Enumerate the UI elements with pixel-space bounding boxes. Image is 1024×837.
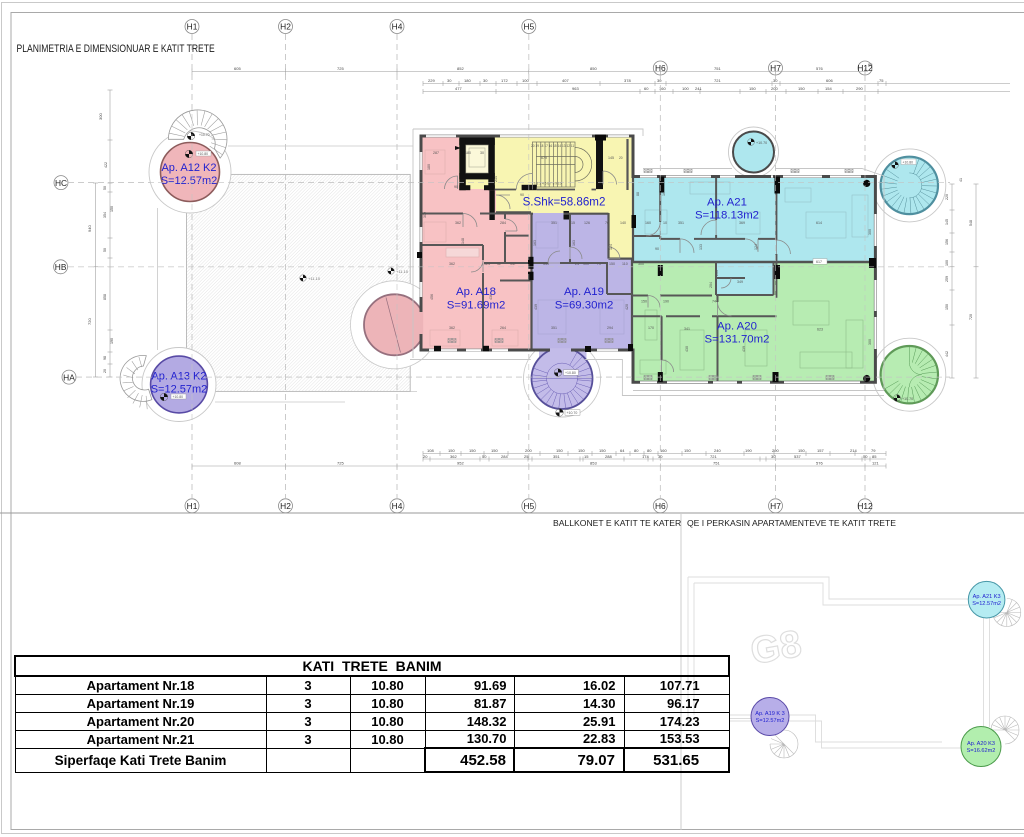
svg-text:963: 963 <box>572 86 579 91</box>
svg-text:140: 140 <box>620 221 626 225</box>
svg-text:548: 548 <box>969 220 973 226</box>
svg-text:H6: H6 <box>655 501 666 511</box>
svg-text:S=12.57m2: S=12.57m2 <box>161 175 218 187</box>
svg-text:288: 288 <box>605 454 612 459</box>
svg-text:605: 605 <box>234 66 241 71</box>
svg-text:150: 150 <box>110 206 114 212</box>
svg-text:124: 124 <box>484 262 490 266</box>
svg-text:150: 150 <box>469 448 476 453</box>
svg-text:110: 110 <box>622 262 628 266</box>
svg-text:264: 264 <box>500 326 506 330</box>
svg-text:362: 362 <box>449 326 455 330</box>
svg-text:32: 32 <box>497 262 501 266</box>
svg-text:952: 952 <box>457 461 464 466</box>
svg-text:439: 439 <box>742 346 746 352</box>
svg-text:30: 30 <box>483 78 488 83</box>
svg-text:300: 300 <box>868 229 872 235</box>
svg-text:+10.70: +10.70 <box>567 411 578 415</box>
svg-text:20: 20 <box>103 369 107 373</box>
svg-text:349: 349 <box>543 262 549 266</box>
svg-text:124: 124 <box>754 244 758 250</box>
svg-text:+10.80: +10.80 <box>903 160 914 164</box>
svg-text:420: 420 <box>625 304 629 310</box>
svg-text:+10.70: +10.70 <box>199 133 210 137</box>
svg-text:+10.80: +10.80 <box>565 371 576 375</box>
svg-text:H4: H4 <box>392 501 403 511</box>
svg-text:S=12.57m2: S=12.57m2 <box>151 384 208 396</box>
svg-text:349: 349 <box>737 280 743 284</box>
svg-text:229: 229 <box>428 78 435 83</box>
svg-text:+11.10: +11.10 <box>396 269 409 274</box>
svg-text:190: 190 <box>663 300 669 304</box>
svg-text:156: 156 <box>945 239 949 245</box>
svg-text:20 19 18 17 16 15 14 13 12 11: 20 19 18 17 16 15 14 13 12 11 <box>531 144 574 148</box>
svg-text:HB: HB <box>55 262 67 272</box>
svg-text:378: 378 <box>624 78 631 83</box>
svg-text:163: 163 <box>533 240 537 246</box>
svg-text:50: 50 <box>103 248 107 252</box>
svg-text:214: 214 <box>494 176 498 182</box>
svg-text:351: 351 <box>551 221 557 225</box>
svg-text:100: 100 <box>945 260 949 266</box>
svg-text:725: 725 <box>337 461 344 466</box>
svg-text:180: 180 <box>427 164 431 170</box>
svg-text:214: 214 <box>850 448 857 453</box>
svg-text:606: 606 <box>826 78 833 83</box>
svg-text:20: 20 <box>423 454 428 459</box>
svg-text:174: 174 <box>642 454 649 459</box>
svg-text:G8: G8 <box>747 623 804 673</box>
svg-text:HA: HA <box>63 372 75 382</box>
svg-text:H12: H12 <box>857 501 873 511</box>
svg-text:351: 351 <box>551 326 557 330</box>
svg-text:721: 721 <box>710 454 717 459</box>
svg-text:163: 163 <box>572 240 576 246</box>
svg-text:15: 15 <box>571 221 575 225</box>
svg-text:617: 617 <box>816 260 822 264</box>
svg-text:S.Shk=58.86m2: S.Shk=58.86m2 <box>523 196 606 209</box>
svg-text:Ap. A12 K2: Ap. A12 K2 <box>161 162 216 174</box>
svg-text:341: 341 <box>684 327 690 331</box>
svg-text:351: 351 <box>678 221 684 225</box>
svg-text:Ap. A18: Ap. A18 <box>456 286 496 298</box>
svg-text:456: 456 <box>430 294 434 300</box>
svg-text:24: 24 <box>575 262 579 266</box>
svg-text:S=91.69m2: S=91.69m2 <box>447 300 506 312</box>
svg-text:180: 180 <box>465 151 471 155</box>
svg-text:75: 75 <box>879 78 884 83</box>
svg-text:422: 422 <box>104 162 108 168</box>
svg-text:10: 10 <box>663 221 667 225</box>
svg-text:442: 442 <box>945 351 949 357</box>
svg-text:150: 150 <box>609 262 615 266</box>
svg-text:30: 30 <box>447 78 452 83</box>
svg-text:351: 351 <box>553 454 560 459</box>
svg-text:+10.70: +10.70 <box>902 397 913 401</box>
svg-text:60: 60 <box>644 86 649 91</box>
svg-text:147: 147 <box>510 262 516 266</box>
svg-text:284: 284 <box>500 221 506 225</box>
svg-text:287: 287 <box>433 151 439 155</box>
svg-text:720: 720 <box>87 318 92 325</box>
svg-text:160: 160 <box>645 221 651 225</box>
svg-text:121: 121 <box>872 461 879 466</box>
svg-text:S=69.30m2: S=69.30m2 <box>555 300 614 312</box>
svg-text:+10.80: +10.80 <box>198 152 209 156</box>
svg-text:300: 300 <box>638 262 644 266</box>
svg-text:190: 190 <box>745 448 752 453</box>
svg-text:290: 290 <box>856 86 863 91</box>
svg-text:30: 30 <box>480 151 484 155</box>
svg-text:150: 150 <box>556 448 563 453</box>
svg-text:725: 725 <box>337 66 344 71</box>
svg-text:+11.10: +11.10 <box>308 276 321 281</box>
svg-text:80: 80 <box>647 448 652 453</box>
svg-text:PLANIMETRIA E DIMENSIONUAR E K: PLANIMETRIA E DIMENSIONUAR E KATIT TRETE <box>17 43 216 55</box>
svg-text:852: 852 <box>457 66 464 71</box>
svg-text:858: 858 <box>103 294 107 300</box>
svg-text:154: 154 <box>825 86 832 91</box>
svg-text:BALLKONET E KATIT TE KATER: BALLKONET E KATIT TE KATER <box>553 518 681 528</box>
svg-text:100: 100 <box>522 78 529 83</box>
svg-text:H2: H2 <box>280 22 291 32</box>
svg-text:100: 100 <box>583 262 589 266</box>
svg-text:108: 108 <box>427 448 434 453</box>
svg-text:70: 70 <box>597 262 601 266</box>
svg-text:H5: H5 <box>523 501 534 511</box>
svg-text:QE I PERKASIN APARTAMENTEVE TE: QE I PERKASIN APARTAMENTEVE TE KATIT TRE… <box>687 518 896 528</box>
svg-text:Ap. A20 K3: Ap. A20 K3 <box>967 741 995 747</box>
svg-text:100: 100 <box>682 86 689 91</box>
svg-text:90: 90 <box>655 247 659 251</box>
svg-text:362: 362 <box>449 262 455 266</box>
svg-text:576: 576 <box>816 66 823 71</box>
svg-text:15: 15 <box>584 454 589 459</box>
svg-text:407: 407 <box>562 78 569 83</box>
svg-text:Ap. A20: Ap. A20 <box>717 321 757 333</box>
svg-text:64: 64 <box>620 448 625 453</box>
svg-text:50: 50 <box>863 454 868 459</box>
svg-text:H4: H4 <box>392 22 403 32</box>
svg-text:150: 150 <box>641 300 647 304</box>
svg-text:Ap. A19 K 3: Ap. A19 K 3 <box>755 711 785 717</box>
svg-text:362: 362 <box>455 221 461 225</box>
svg-text:205: 205 <box>715 270 719 276</box>
svg-text:369: 369 <box>739 221 745 225</box>
svg-text:614: 614 <box>816 221 822 225</box>
svg-text:50: 50 <box>482 454 487 459</box>
svg-text:79: 79 <box>871 448 876 453</box>
svg-text:S=118.13m2: S=118.13m2 <box>695 210 759 222</box>
svg-text:477: 477 <box>455 86 462 91</box>
svg-text:16: 16 <box>662 192 666 196</box>
svg-text:S=12.57m2: S=12.57m2 <box>756 718 785 724</box>
svg-text:150: 150 <box>945 304 949 310</box>
svg-text:439: 439 <box>534 304 538 310</box>
svg-text:70: 70 <box>605 221 609 225</box>
svg-text:Ap. A19: Ap. A19 <box>564 286 604 298</box>
svg-text:362: 362 <box>450 454 457 459</box>
svg-text:284: 284 <box>501 454 508 459</box>
svg-text:172: 172 <box>501 78 508 83</box>
svg-text:679: 679 <box>541 156 547 160</box>
svg-text:300: 300 <box>423 212 427 218</box>
svg-text:853: 853 <box>590 461 597 466</box>
svg-text:1 2 3 4 5 6 7 8 9 10: 1 2 3 4 5 6 7 8 9 10 <box>534 182 562 186</box>
svg-text:41: 41 <box>959 178 963 182</box>
svg-text:180: 180 <box>464 78 471 83</box>
svg-text:145: 145 <box>945 219 949 225</box>
svg-text:124: 124 <box>609 244 613 250</box>
svg-text:300: 300 <box>868 339 872 345</box>
svg-text:170: 170 <box>648 326 654 330</box>
svg-text:133: 133 <box>699 244 703 250</box>
svg-text:204: 204 <box>709 282 713 288</box>
svg-text:259: 259 <box>945 276 949 282</box>
svg-text:190: 190 <box>110 338 114 344</box>
svg-text:537: 537 <box>794 454 801 459</box>
svg-text:576: 576 <box>816 461 823 466</box>
svg-text:88: 88 <box>636 192 640 196</box>
svg-text:240: 240 <box>714 448 721 453</box>
svg-text:H1: H1 <box>187 22 198 32</box>
svg-text:160: 160 <box>660 448 667 453</box>
svg-text:H7: H7 <box>770 501 781 511</box>
svg-text:150: 150 <box>798 86 805 91</box>
svg-text:H2: H2 <box>280 501 291 511</box>
svg-text:150: 150 <box>491 448 498 453</box>
svg-text:90: 90 <box>454 185 458 189</box>
svg-text:S=16.62m2: S=16.62m2 <box>967 748 996 754</box>
svg-text:608: 608 <box>234 461 241 466</box>
svg-text:148: 148 <box>461 238 465 244</box>
svg-text:150: 150 <box>448 448 455 453</box>
svg-text:S=131.70m2: S=131.70m2 <box>705 334 770 346</box>
svg-text:Ap. A21 K3: Ap. A21 K3 <box>973 594 1001 600</box>
svg-text:Ap. A21: Ap. A21 <box>707 197 747 209</box>
svg-text:294: 294 <box>607 326 613 330</box>
svg-text:50: 50 <box>103 186 107 190</box>
svg-text:+10.80: +10.80 <box>173 395 184 399</box>
svg-text:85: 85 <box>872 454 877 459</box>
svg-text:150: 150 <box>684 448 691 453</box>
svg-text:200: 200 <box>771 86 778 91</box>
svg-text:20: 20 <box>619 156 623 160</box>
svg-text:430: 430 <box>685 346 689 352</box>
svg-text:354: 354 <box>103 212 107 218</box>
svg-text:940: 940 <box>87 225 92 232</box>
svg-text:150: 150 <box>798 448 805 453</box>
svg-text:157: 157 <box>817 448 824 453</box>
svg-text:H5: H5 <box>523 22 534 32</box>
svg-text:220: 220 <box>945 194 949 200</box>
svg-text:H1: H1 <box>187 501 198 511</box>
svg-text:126: 126 <box>584 221 590 225</box>
svg-text:150: 150 <box>749 86 756 91</box>
svg-text:850: 850 <box>590 66 597 71</box>
svg-text:HC: HC <box>55 178 67 188</box>
svg-text:S=12.57m2: S=12.57m2 <box>972 601 1001 607</box>
svg-text:721: 721 <box>714 78 721 83</box>
svg-text:150: 150 <box>599 448 606 453</box>
svg-text:300: 300 <box>98 113 103 120</box>
svg-text:30: 30 <box>657 78 662 83</box>
svg-text:+10.70: +10.70 <box>756 141 767 145</box>
svg-text:98: 98 <box>103 356 107 360</box>
svg-text:744: 744 <box>712 300 718 304</box>
svg-text:80: 80 <box>634 448 639 453</box>
svg-text:241: 241 <box>695 86 702 91</box>
svg-text:751: 751 <box>713 461 720 466</box>
svg-text:150: 150 <box>578 448 585 453</box>
svg-text:65: 65 <box>868 62 873 67</box>
svg-text:145: 145 <box>608 156 614 160</box>
svg-text:25: 25 <box>524 454 529 459</box>
svg-text:720: 720 <box>969 314 973 320</box>
svg-text:751: 751 <box>714 66 721 71</box>
svg-text:Ap. A13 K2: Ap. A13 K2 <box>151 371 206 383</box>
svg-text:623: 623 <box>817 328 823 332</box>
